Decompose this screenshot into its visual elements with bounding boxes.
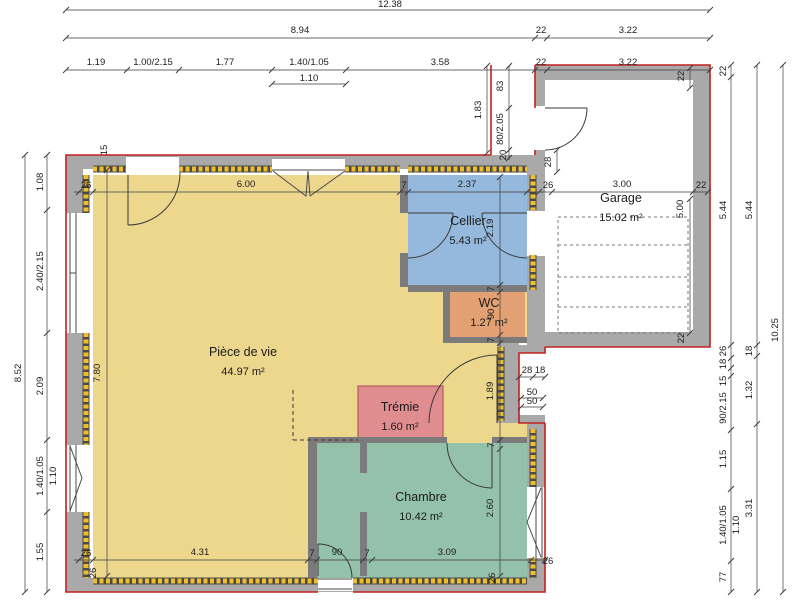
room-name-label: WC <box>479 296 500 310</box>
dim-label: 1.15 <box>718 450 729 469</box>
dim-label: 3.58 <box>431 57 450 68</box>
dim-label: 20 <box>498 150 509 161</box>
dim-label: 83 <box>495 81 506 92</box>
room-area-label: 1.27 m² <box>470 317 508 329</box>
dim-label: 8.94 <box>291 25 310 36</box>
dim-label: 22 <box>536 25 547 36</box>
dim-label: 26 <box>81 548 92 559</box>
dim-label: 26 <box>543 180 554 191</box>
dim-label: 6.00 <box>237 179 256 190</box>
dim-label: 2.37 <box>458 179 477 190</box>
dim-label: 77 <box>718 572 729 583</box>
room-area-label: 5.43 m² <box>449 235 487 247</box>
dim-label: 1.08 <box>35 173 46 192</box>
dim-label: 22 <box>676 333 687 344</box>
dim-label: 3.00 <box>613 179 632 190</box>
room-area-label: 1.60 m² <box>381 421 419 433</box>
dim-label: 1.10 <box>48 467 59 486</box>
dim-label: 22 <box>696 180 707 191</box>
dim-label: 26 <box>543 556 554 567</box>
room-area-label: 15.02 m² <box>599 212 643 224</box>
dim-label: 50 <box>527 396 538 407</box>
dim-label: 7 <box>364 548 369 559</box>
dim-label: 7 <box>486 286 497 291</box>
floor-garage <box>545 80 693 332</box>
dim-label: 15 <box>718 376 729 387</box>
dim-label: 12.38 <box>378 0 402 10</box>
dim-label: 26 <box>88 568 99 579</box>
dim-label: 22 <box>536 57 547 68</box>
room-name-label: Chambre <box>395 490 446 504</box>
room-area-label: 10.42 m² <box>399 511 443 523</box>
dim-label: 18 <box>535 365 546 376</box>
dim-label: 2.60 <box>485 499 496 518</box>
floor-plan-drawing: 12.388.94223.221.191.00/2.151.771.40/1.0… <box>0 0 800 600</box>
dim-label: 22 <box>718 66 729 77</box>
dim-label: 5.44 <box>744 201 755 220</box>
dim-label: 28 <box>543 157 554 168</box>
dim-label: 7.80 <box>92 364 103 383</box>
dim-label: 18 <box>744 346 755 357</box>
dim-label: 1.10 <box>731 516 742 535</box>
room-name-label: Garage <box>600 191 642 205</box>
dim-label: 7 <box>401 180 406 191</box>
dim-label: 3.31 <box>744 499 755 518</box>
dim-label: 7 <box>486 442 497 447</box>
dim-label: 80/2.05 <box>495 113 506 145</box>
dim-label: 10.25 <box>770 318 781 342</box>
dim-label: 3.22 <box>619 25 638 36</box>
dim-label: 1.19 <box>87 57 106 68</box>
dim-label: 1.10 <box>300 73 319 84</box>
dim-label: 1.00/2.15 <box>133 57 173 68</box>
dim-label: 90 <box>332 547 343 558</box>
dim-label: 26 <box>718 346 729 357</box>
dim-label: 3.22 <box>619 57 638 68</box>
dim-label: 4.31 <box>191 547 210 558</box>
floor-plan-page: 12.388.94223.221.191.00/2.151.771.40/1.0… <box>0 0 800 600</box>
dim-label: 26 <box>487 573 498 584</box>
room-area-label: 44.97 m² <box>221 366 265 378</box>
dim-label: 1.40/1.05 <box>718 505 729 545</box>
dim-label: 1.32 <box>744 381 755 400</box>
dim-label: 1.55 <box>35 543 46 562</box>
dim-label: 22 <box>676 71 687 82</box>
dim-label: 26 <box>81 180 92 191</box>
dim-label: 5.00 <box>675 200 686 219</box>
dim-label: 18 <box>718 359 729 370</box>
room-name-label: Trémie <box>381 400 419 414</box>
dim-label: 15 <box>99 145 110 156</box>
dim-label: 1.89 <box>485 382 496 401</box>
dim-label: 8.52 <box>13 364 24 383</box>
room-name-label: Cellier <box>450 214 485 228</box>
dim-label: 2.09 <box>35 377 46 396</box>
room-name-label: Pièce de vie <box>209 345 277 359</box>
dim-label: 90/2.15 <box>718 392 729 424</box>
dim-label: 1.77 <box>216 57 235 68</box>
dim-label: 1.40/1.05 <box>35 456 46 496</box>
dim-label: 7 <box>486 337 497 342</box>
dim-label: 2.40/2.15 <box>35 251 46 291</box>
dim-label: 7 <box>309 548 314 559</box>
dim-label: 1.83 <box>473 101 484 120</box>
dim-label: 28 <box>522 365 533 376</box>
floor-cellier <box>408 175 527 285</box>
dim-label: 1.40/1.05 <box>289 57 329 68</box>
dim-label: 3.09 <box>438 547 457 558</box>
dim-label: 5.44 <box>718 201 729 220</box>
